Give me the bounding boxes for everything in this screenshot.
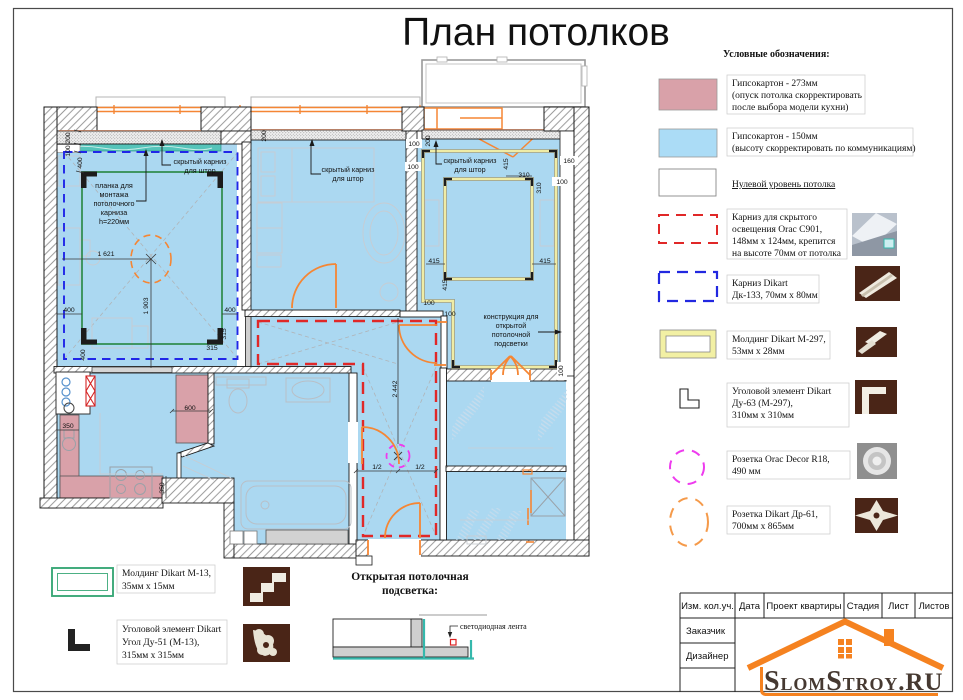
svg-text:Дк-133, 70мм x 80мм: Дк-133, 70мм x 80мм	[732, 291, 818, 301]
svg-text:415: 415	[503, 158, 510, 170]
svg-text:160: 160	[563, 158, 575, 165]
svg-text:открытой: открытой	[496, 321, 527, 330]
svg-text:Условные обозначения:: Условные обозначения:	[723, 49, 830, 60]
svg-text:монтажа: монтажа	[100, 190, 129, 199]
svg-text:100: 100	[556, 179, 568, 186]
svg-text:Угол Ду-51 (М-13),: Угол Ду-51 (М-13),	[122, 637, 199, 648]
svg-text:100: 100	[558, 365, 565, 377]
svg-text:100: 100	[408, 141, 420, 148]
svg-text:Ду-63 (M-297),: Ду-63 (M-297),	[732, 398, 793, 409]
svg-text:100: 100	[423, 300, 435, 307]
svg-text:1/2: 1/2	[372, 464, 382, 471]
svg-text:Изм. кол.уч.: Изм. кол.уч.	[681, 601, 734, 612]
svg-text:конструкция для: конструкция для	[483, 312, 538, 321]
svg-text:на высоте 70мм от потолка: на высоте 70мм от потолка	[732, 249, 842, 259]
svg-text:Карниз Dikart: Карниз Dikart	[732, 279, 788, 289]
svg-text:скрытый карниз: скрытый карниз	[322, 165, 376, 174]
svg-text:скрытый карниз: скрытый карниз	[174, 157, 228, 166]
svg-text:h=220мм: h=220мм	[99, 217, 129, 226]
svg-text:Молдинг Dikart M-297,: Молдинг Dikart M-297,	[732, 335, 826, 345]
svg-text:Карниз для скрытого: Карниз для скрытого	[732, 213, 817, 223]
svg-text:подсветка:: подсветка:	[382, 585, 438, 597]
svg-text:310: 310	[536, 182, 543, 194]
svg-text:планка для: планка для	[95, 181, 133, 190]
svg-text:(высоту скорректировать по ком: (высоту скорректировать по коммуникациям…	[732, 143, 916, 154]
svg-text:400: 400	[80, 349, 87, 361]
svg-text:Проект квартиры: Проект квартиры	[766, 601, 841, 612]
svg-text:Листов: Листов	[919, 601, 950, 612]
svg-text:Уголовой элемент Dikart: Уголовой элемент Dikart	[732, 386, 832, 397]
svg-text:Розетка Dikart Др-61,: Розетка Dikart Др-61,	[732, 510, 818, 520]
svg-text:Лист: Лист	[888, 601, 909, 612]
svg-text:Уголовой элемент Dikart: Уголовой элемент Dikart	[122, 624, 222, 635]
svg-text:после выбора модели кухни): после выбора модели кухни)	[732, 102, 848, 113]
svg-text:310мм x 310мм: 310мм x 310мм	[732, 411, 794, 421]
svg-text:100: 100	[407, 164, 419, 171]
svg-text:для штор: для штор	[454, 165, 485, 174]
svg-text:315мм x 315мм: 315мм x 315мм	[122, 651, 184, 661]
svg-text:350: 350	[62, 423, 74, 430]
svg-text:400: 400	[77, 157, 84, 169]
svg-text:Стадия: Стадия	[847, 601, 879, 612]
svg-text:(опуск потолка скорректировать: (опуск потолка скорректировать	[732, 90, 863, 101]
svg-text:100: 100	[444, 311, 456, 318]
svg-text:потолочного: потолочного	[93, 199, 134, 208]
svg-text:Гипсокартон - 150мм: Гипсокартон - 150мм	[732, 132, 818, 142]
svg-text:Молдинг Dikart M-13,: Молдинг Dikart M-13,	[122, 569, 211, 579]
svg-text:подсветки: подсветки	[494, 339, 527, 348]
svg-text:освещения Orac C901,: освещения Orac C901,	[732, 225, 822, 235]
svg-text:Дизайнер: Дизайнер	[686, 651, 729, 662]
svg-text:310: 310	[518, 172, 530, 179]
svg-text:700мм x 865мм: 700мм x 865мм	[732, 522, 794, 532]
svg-text:Розетка Orac Decor R18,: Розетка Orac Decor R18,	[732, 455, 830, 465]
svg-text:100: 100	[65, 145, 72, 157]
svg-text:для штор: для штор	[184, 166, 215, 175]
svg-text:потолочной: потолочной	[492, 330, 531, 339]
svg-text:400: 400	[224, 307, 236, 314]
svg-text:148мм x 124мм, крепится: 148мм x 124мм, крепится	[732, 237, 836, 247]
svg-text:Гипсокартон - 273мм: Гипсокартон - 273мм	[732, 79, 818, 89]
svg-text:светодиодная лента: светодиодная лента	[460, 622, 527, 631]
svg-text:1/2: 1/2	[415, 464, 425, 471]
svg-text:Дата: Дата	[739, 601, 761, 612]
svg-text:200: 200	[261, 130, 268, 142]
svg-text:карниза: карниза	[101, 208, 128, 217]
svg-text:490 мм: 490 мм	[732, 467, 761, 477]
svg-text:315: 315	[221, 328, 228, 340]
svg-text:415: 415	[442, 279, 449, 291]
svg-text:53мм x 28мм: 53мм x 28мм	[732, 347, 785, 357]
svg-text:350: 350	[159, 482, 166, 494]
svg-text:200: 200	[425, 135, 432, 147]
svg-text:1 903: 1 903	[143, 297, 150, 314]
svg-text:Заказчик: Заказчик	[686, 626, 726, 637]
svg-text:Открытая потолочная: Открытая потолочная	[351, 571, 469, 583]
svg-text:скрытый карниз: скрытый карниз	[444, 156, 498, 165]
svg-text:для штор: для штор	[332, 174, 363, 183]
svg-text:200: 200	[65, 132, 72, 144]
svg-text:35мм x 15мм: 35мм x 15мм	[122, 582, 175, 592]
svg-text:План потолков: План потолков	[402, 11, 670, 54]
svg-text:400: 400	[63, 307, 75, 314]
svg-text:1 621: 1 621	[97, 251, 114, 258]
svg-text:315: 315	[206, 345, 218, 352]
svg-text:Нулевой уровень потолка: Нулевой уровень потолка	[732, 179, 836, 190]
